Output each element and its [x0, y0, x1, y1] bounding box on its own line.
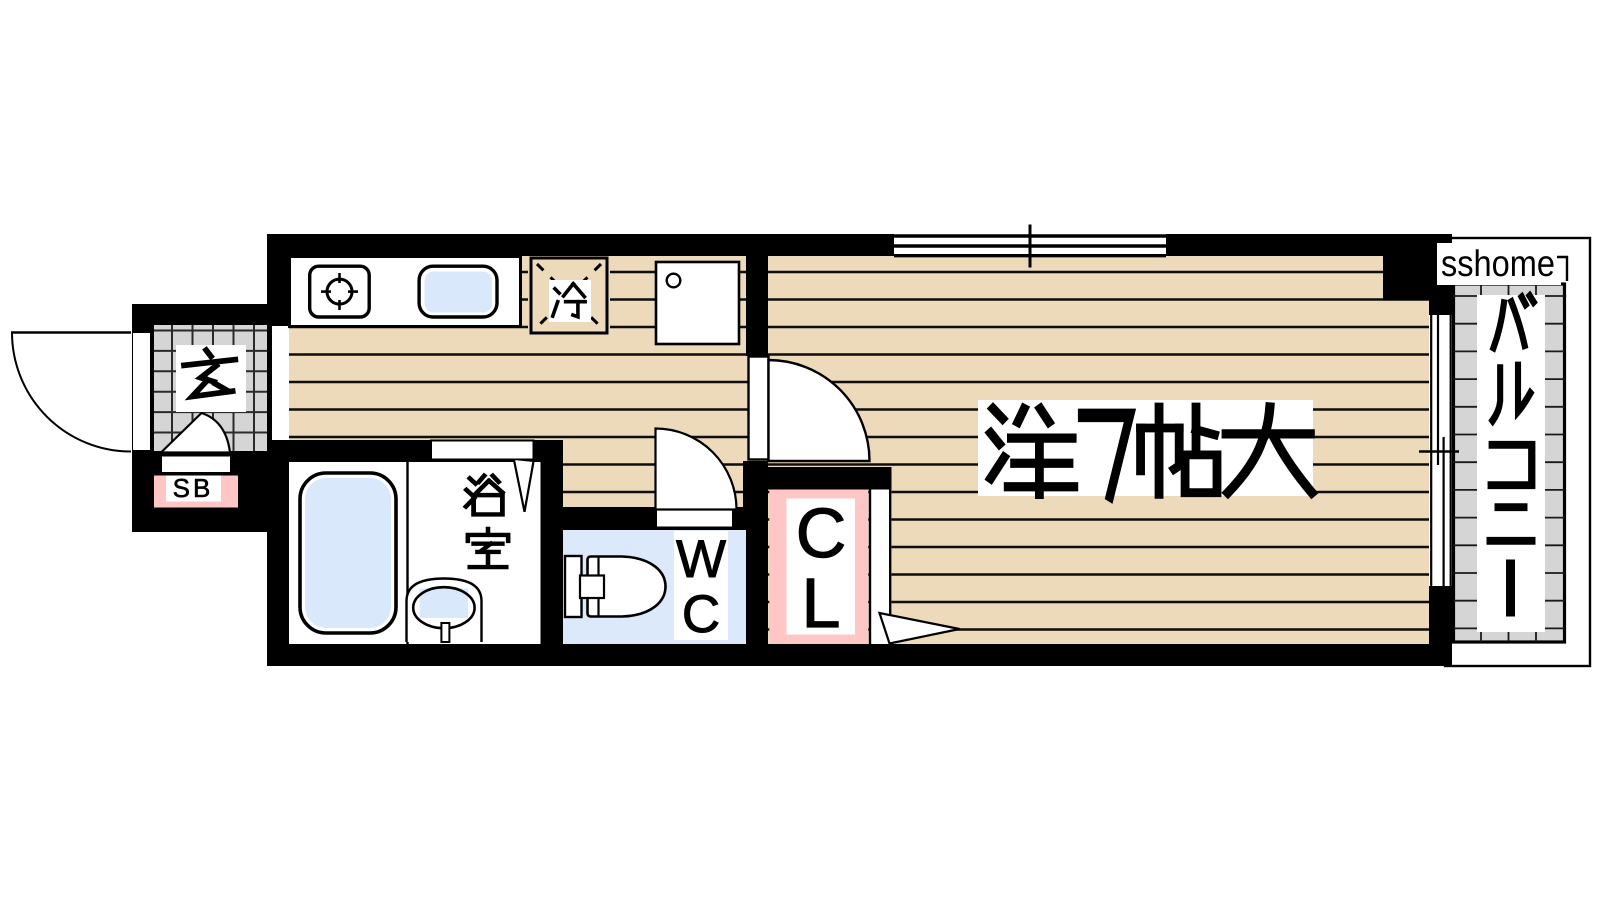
svg-text:sshome: sshome: [1441, 243, 1555, 284]
svg-text:W: W: [676, 530, 726, 589]
svg-text:C: C: [682, 585, 720, 644]
svg-text:C: C: [796, 494, 847, 572]
svg-text:L: L: [802, 564, 841, 642]
svg-text:SB: SB: [173, 473, 214, 503]
